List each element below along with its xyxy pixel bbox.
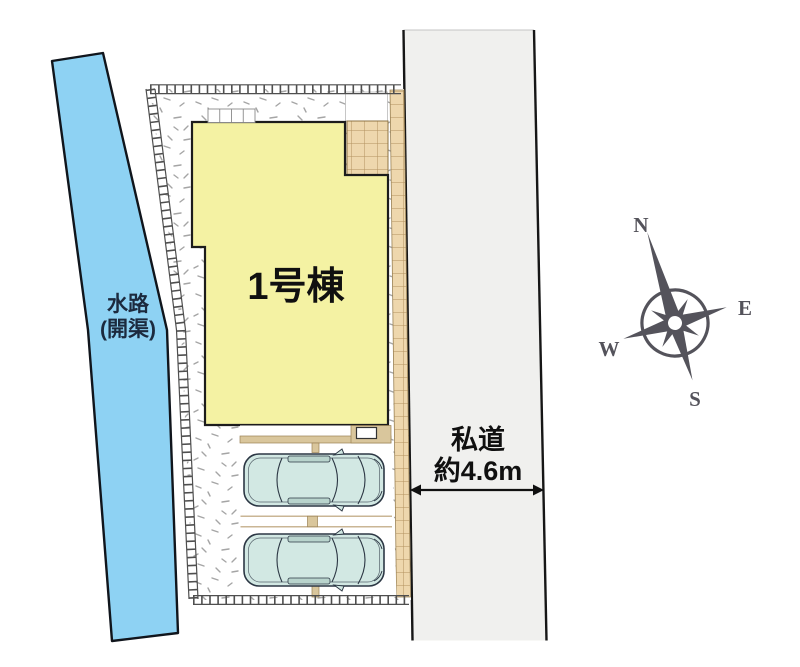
entrance-tiles (347, 121, 388, 175)
car-2 (244, 529, 384, 591)
compass-cardinal-points (596, 216, 745, 396)
compass-label-w: W (599, 337, 620, 361)
entrance-nook (346, 92, 388, 121)
compass-label-s: S (689, 387, 701, 411)
compass-rose: N E W S (596, 213, 752, 411)
car-1 (244, 449, 384, 511)
waterway-label-line1: 水路 (107, 292, 150, 316)
parking-area (240, 426, 397, 598)
utility-box (357, 428, 377, 439)
building-label: 1号棟 (247, 266, 345, 308)
waterway-label-line2: (開渠) (100, 317, 156, 341)
compass-label-e: E (738, 296, 752, 320)
compass-label-n: N (633, 213, 648, 237)
private-road: 私道 約4.6m (404, 30, 547, 641)
site-plan-drawing: 水路 (開渠) 私道 約4.6m 1号棟 (0, 0, 800, 667)
building-step (208, 109, 255, 123)
road-label-line1: 私道 (451, 424, 505, 455)
site-plan-canvas: 水路 (開渠) 私道 約4.6m 1号棟 (0, 0, 800, 667)
road-shape (404, 30, 547, 641)
road-label-line2: 約4.6m (434, 455, 523, 486)
